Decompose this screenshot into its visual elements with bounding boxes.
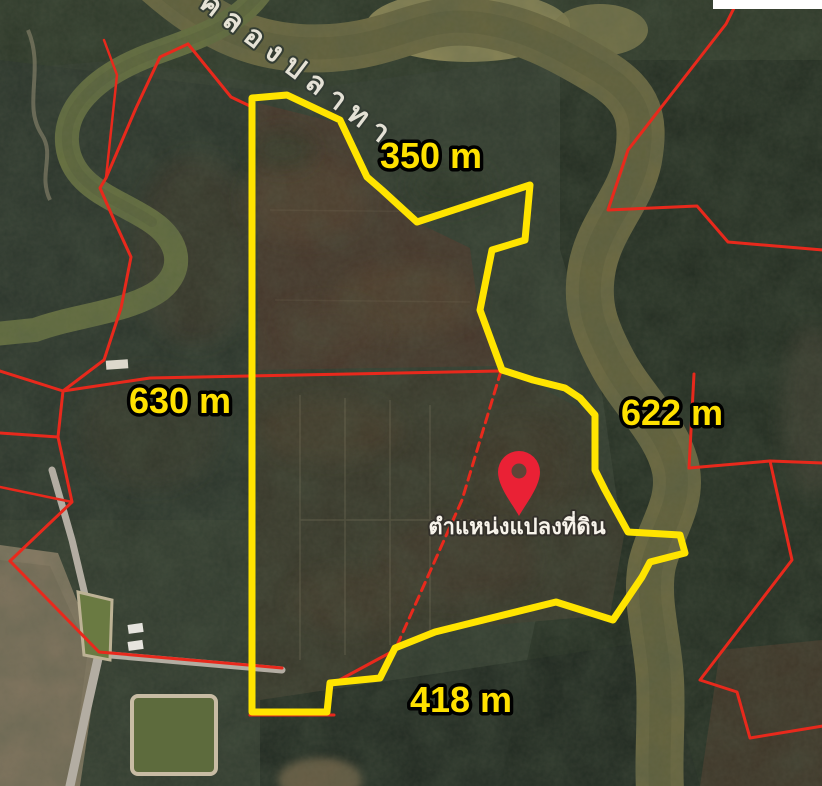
map-canvas: คลองปลาทาง 350 m 630 m 622 m 418 m ตำแหน… <box>0 0 822 786</box>
measurement-label-south: 418 m <box>410 679 512 720</box>
measurement-label-north: 350 m <box>380 135 482 176</box>
top-right-white-strip <box>713 0 822 9</box>
measurement-label-east: 622 m <box>621 392 723 433</box>
bridge <box>106 359 129 370</box>
measurement-label-west: 630 m <box>129 380 231 421</box>
satellite-map-view[interactable]: คลองปลาทาง 350 m 630 m 622 m 418 m ตำแหน… <box>0 0 822 786</box>
pin-caption-label: ตำแหน่งแปลงที่ดิน <box>428 510 605 539</box>
